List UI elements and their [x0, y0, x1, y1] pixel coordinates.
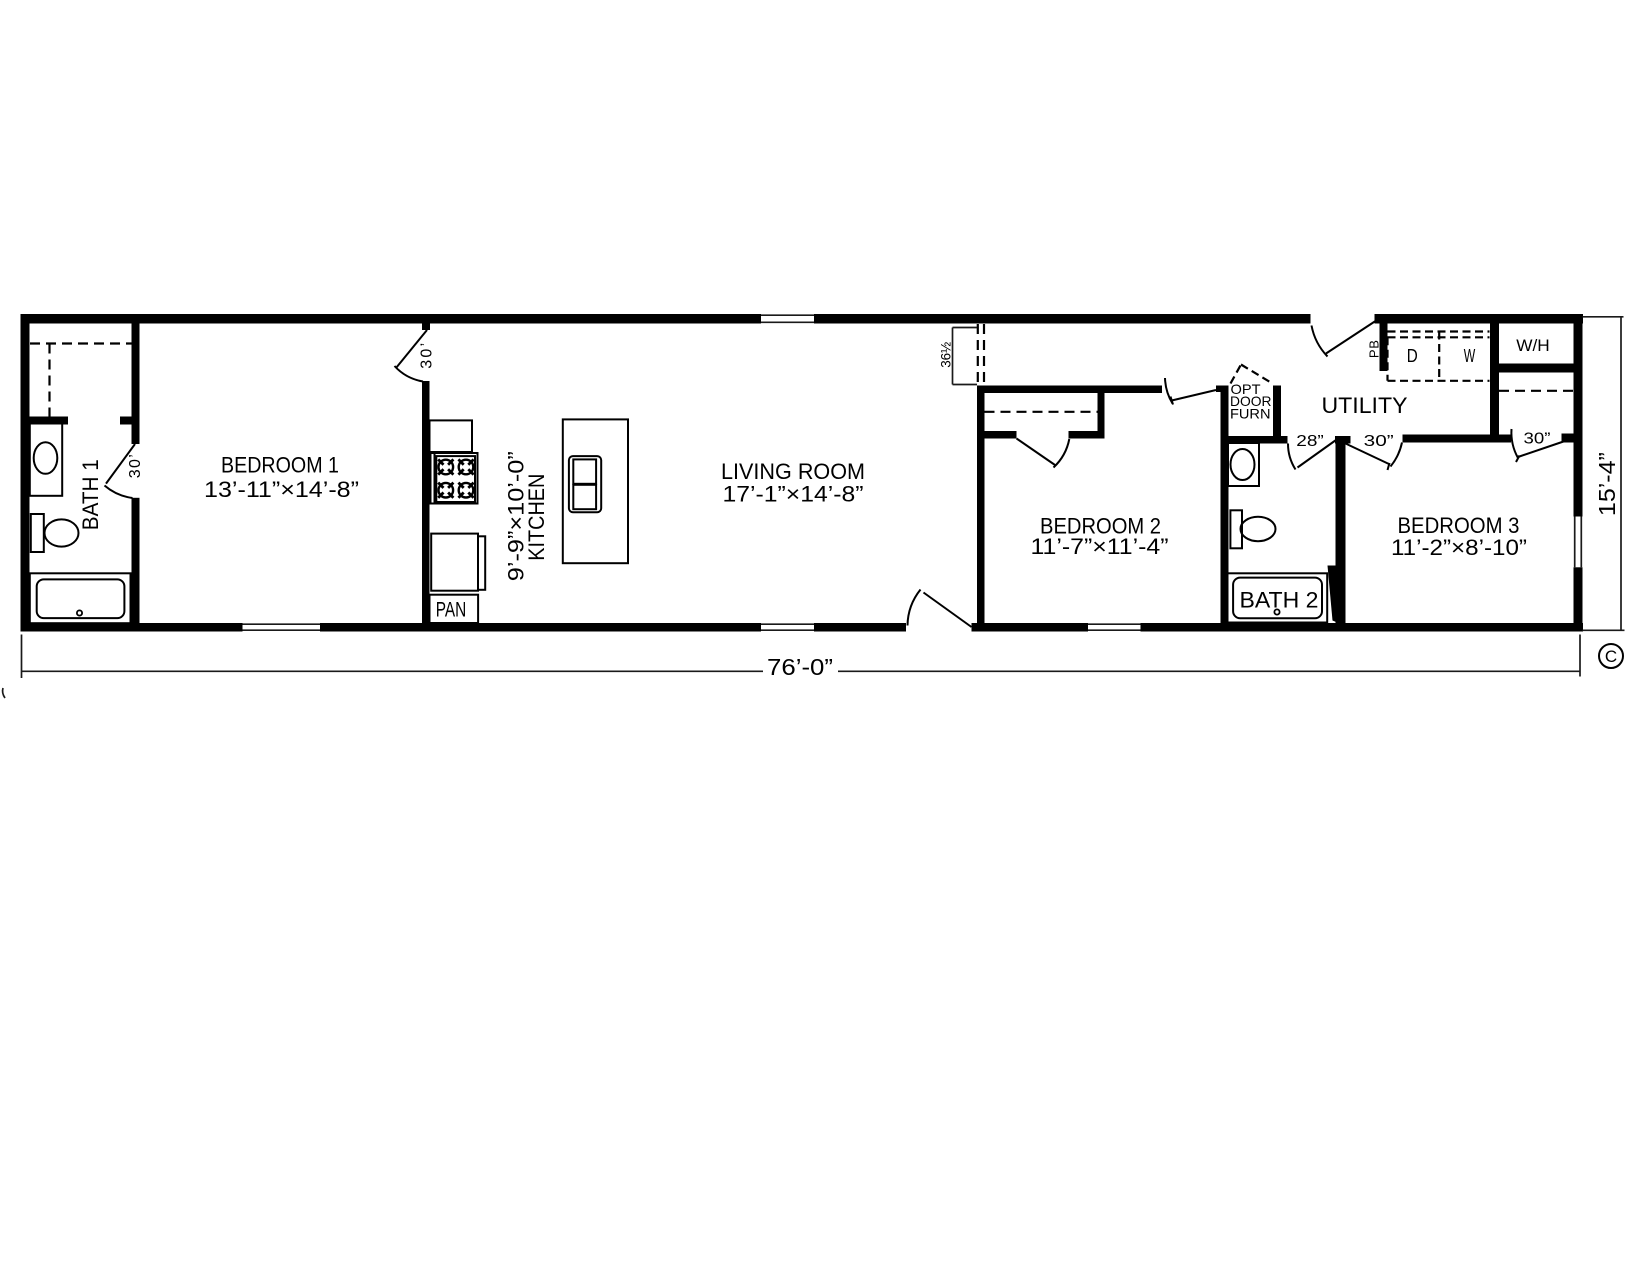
svg-text:13’-11”×14’-8”: 13’-11”×14’-8” — [204, 477, 359, 502]
svg-text:KITCHEN: KITCHEN — [524, 474, 549, 561]
svg-text:17’-1”×14’-8”: 17’-1”×14’-8” — [723, 482, 864, 507]
svg-text:15’-4”: 15’-4” — [1594, 452, 1620, 516]
svg-text:D: D — [1407, 346, 1418, 366]
svg-text:36½: 36½ — [937, 341, 953, 367]
svg-text:UTILITY: UTILITY — [1322, 393, 1408, 418]
svg-text:11’-2”×8’-10”: 11’-2”×8’-10” — [1391, 535, 1527, 560]
svg-text:76’-0”: 76’-0” — [767, 654, 833, 680]
svg-text:W: W — [1464, 346, 1476, 366]
svg-text:30”: 30” — [1524, 431, 1551, 448]
svg-text:28”: 28” — [1296, 433, 1324, 450]
svg-text:BATH 2: BATH 2 — [1240, 588, 1319, 613]
svg-text:30”: 30” — [1364, 433, 1394, 450]
svg-text:11’-7”×11’-4”: 11’-7”×11’-4” — [1031, 534, 1169, 559]
svg-text:C: C — [1605, 647, 1617, 666]
svg-text:30’: 30’ — [127, 454, 144, 478]
svg-text:30’: 30’ — [418, 343, 435, 369]
svg-text:PAN: PAN — [436, 599, 467, 622]
svg-text:W/H: W/H — [1516, 337, 1550, 355]
svg-text:FURN: FURN — [1230, 406, 1271, 422]
svg-text:BATH 1: BATH 1 — [78, 459, 103, 530]
svg-text:BEDROOM 1: BEDROOM 1 — [221, 453, 339, 478]
svg-text:LIVING ROOM: LIVING ROOM — [721, 459, 865, 484]
svg-text:PB: PB — [1367, 340, 1382, 358]
